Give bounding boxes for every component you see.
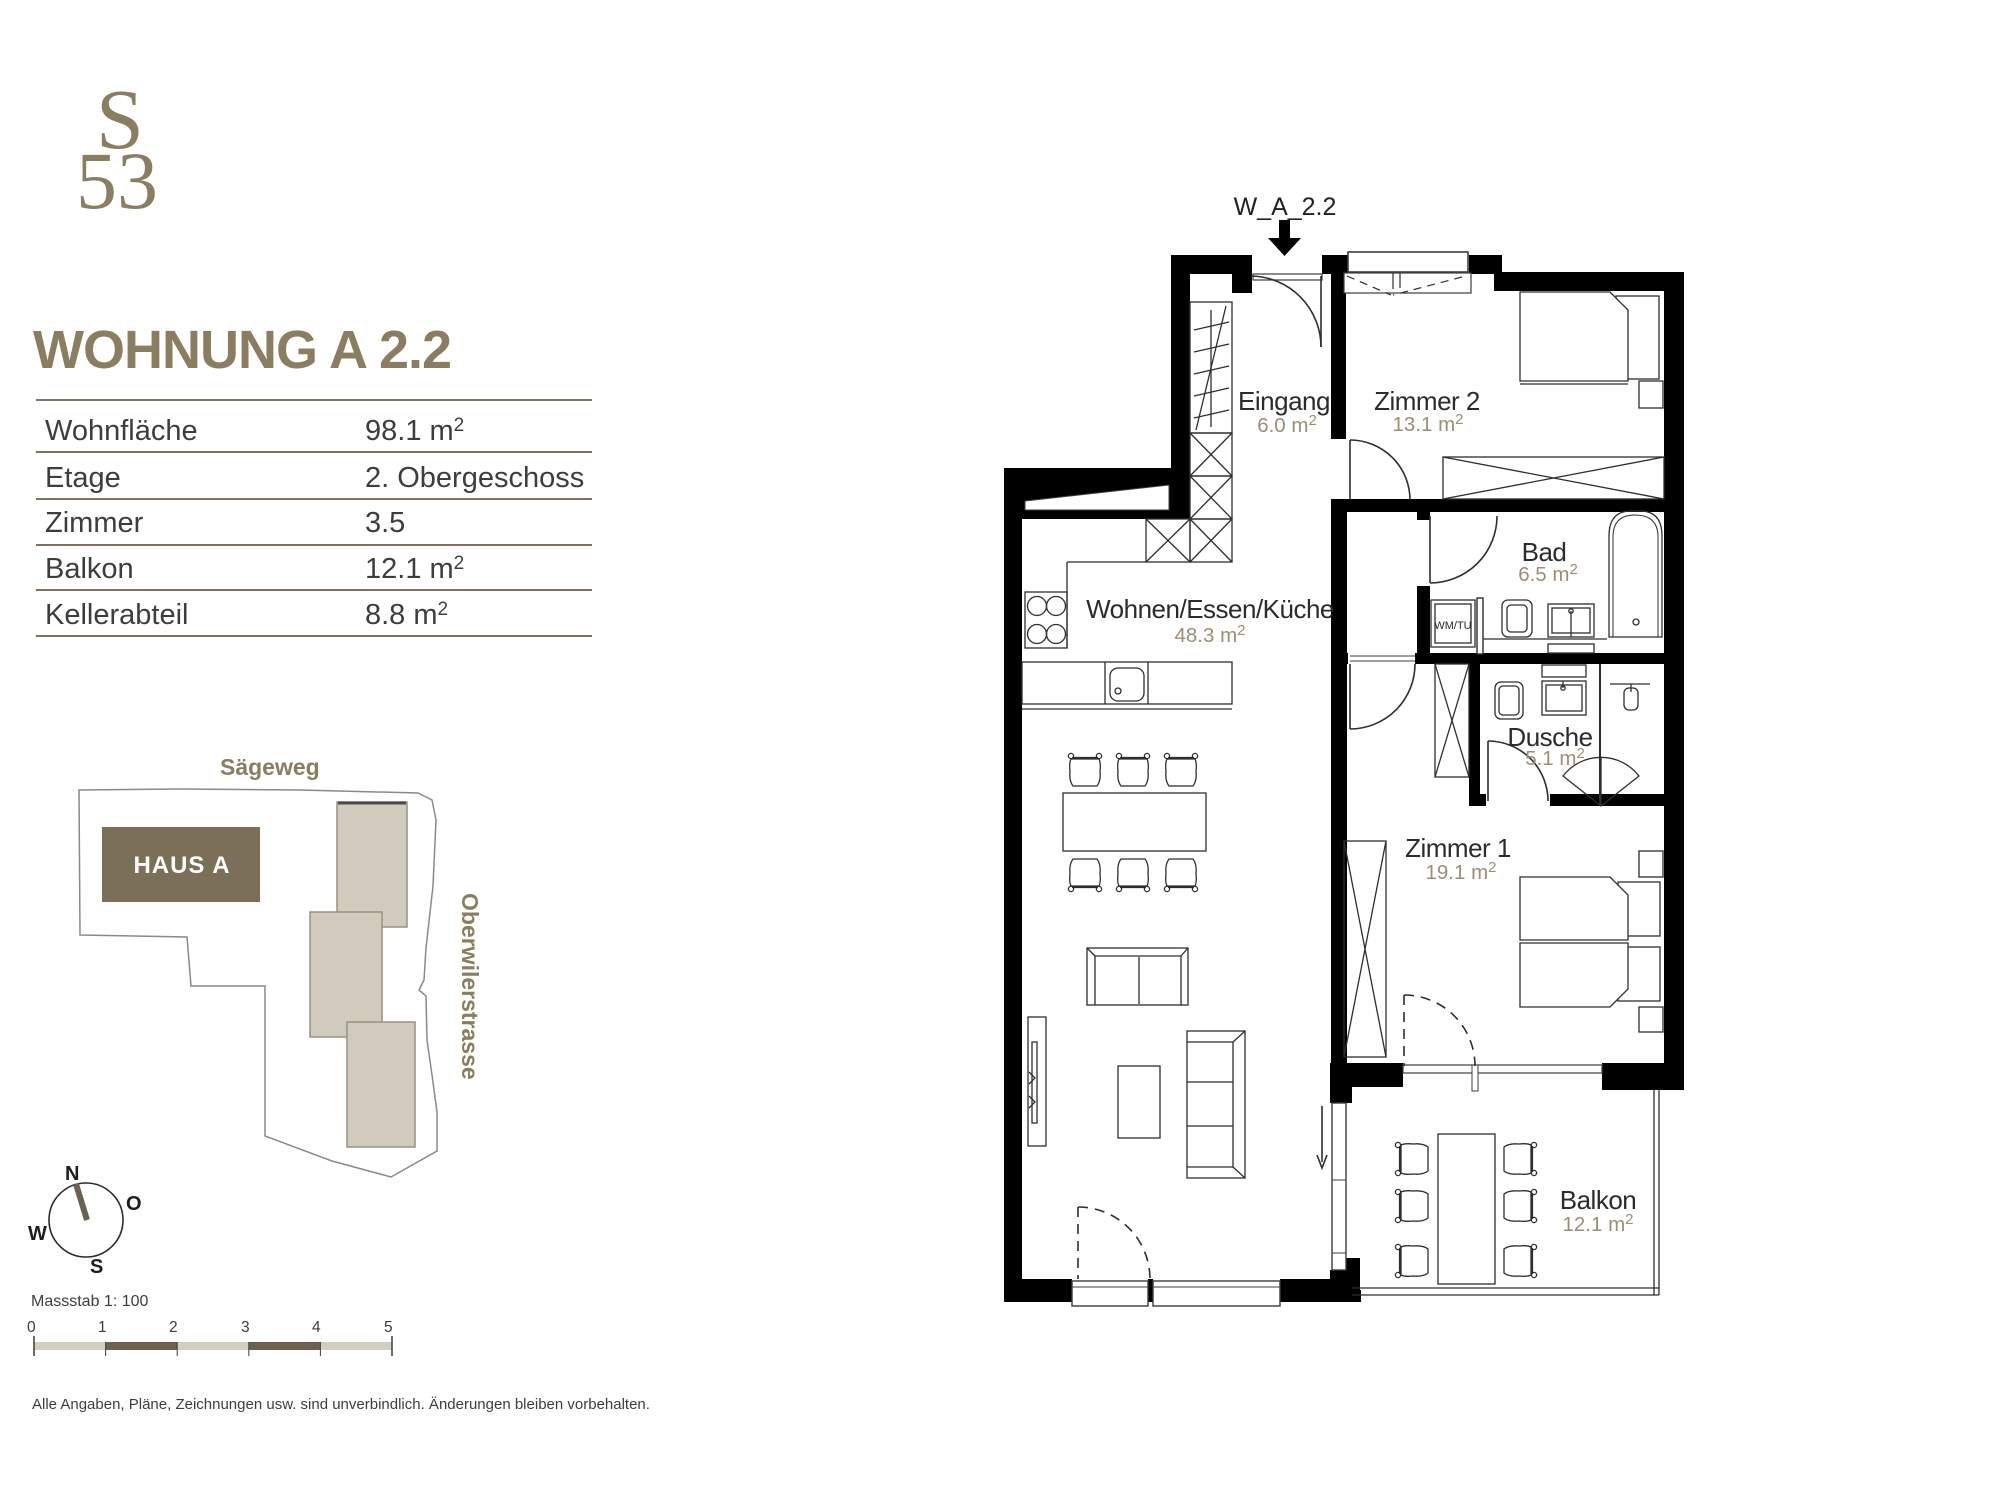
svg-text:O: O xyxy=(126,1193,142,1215)
svg-text:S: S xyxy=(90,1256,103,1278)
svg-text:Zimmer 2: Zimmer 2 xyxy=(1374,386,1480,416)
svg-text:WOHNUNG A 2.2: WOHNUNG A 2.2 xyxy=(33,320,451,380)
svg-text:3.5: 3.5 xyxy=(365,507,405,539)
svg-text:N: N xyxy=(65,1163,79,1185)
svg-text:Wohnfläche: Wohnfläche xyxy=(45,415,198,447)
svg-text:Sägeweg: Sägeweg xyxy=(220,754,320,780)
svg-text:Oberwilerstrasse: Oberwilerstrasse xyxy=(457,893,483,1080)
svg-text:5.1 m2: 5.1 m2 xyxy=(1525,745,1585,770)
svg-text:W: W xyxy=(28,1223,47,1245)
svg-text:1: 1 xyxy=(98,1319,107,1336)
svg-text:Alle Angaben, Pläne, Zeichnung: Alle Angaben, Pläne, Zeichnungen usw. si… xyxy=(32,1396,650,1413)
svg-text:Balkon: Balkon xyxy=(45,553,134,585)
svg-text:Etage: Etage xyxy=(45,462,121,494)
svg-text:HAUS A: HAUS A xyxy=(133,852,230,879)
svg-text:12.1 m2: 12.1 m2 xyxy=(1562,1211,1633,1236)
svg-text:Kellerabteil: Kellerabteil xyxy=(45,599,188,631)
svg-text:8.8 m2: 8.8 m2 xyxy=(365,599,448,631)
svg-text:W_A_2.2: W_A_2.2 xyxy=(1234,193,1337,221)
svg-text:6.5 m2: 6.5 m2 xyxy=(1518,561,1578,586)
svg-text:19.1 m2: 19.1 m2 xyxy=(1425,859,1496,884)
svg-text:53: 53 xyxy=(76,135,158,226)
svg-text:5: 5 xyxy=(384,1319,393,1336)
svg-text:WM/TU: WM/TU xyxy=(1434,620,1471,632)
svg-text:48.3 m2: 48.3 m2 xyxy=(1174,622,1245,647)
svg-text:Massstab 1: 100: Massstab 1: 100 xyxy=(31,1293,149,1310)
svg-text:6.0 m2: 6.0 m2 xyxy=(1257,412,1317,437)
svg-text:3: 3 xyxy=(241,1319,250,1336)
svg-text:12.1 m2: 12.1 m2 xyxy=(365,553,464,585)
svg-text:13.1 m2: 13.1 m2 xyxy=(1392,411,1463,436)
svg-text:98.1 m2: 98.1 m2 xyxy=(365,415,464,447)
svg-text:Wohnen/Essen/Küche: Wohnen/Essen/Küche xyxy=(1086,594,1334,624)
svg-text:Zimmer: Zimmer xyxy=(45,507,144,539)
svg-text:4: 4 xyxy=(312,1319,321,1336)
svg-text:2. Obergeschoss: 2. Obergeschoss xyxy=(365,462,584,494)
svg-text:2: 2 xyxy=(169,1319,178,1336)
svg-text:0: 0 xyxy=(27,1319,36,1336)
